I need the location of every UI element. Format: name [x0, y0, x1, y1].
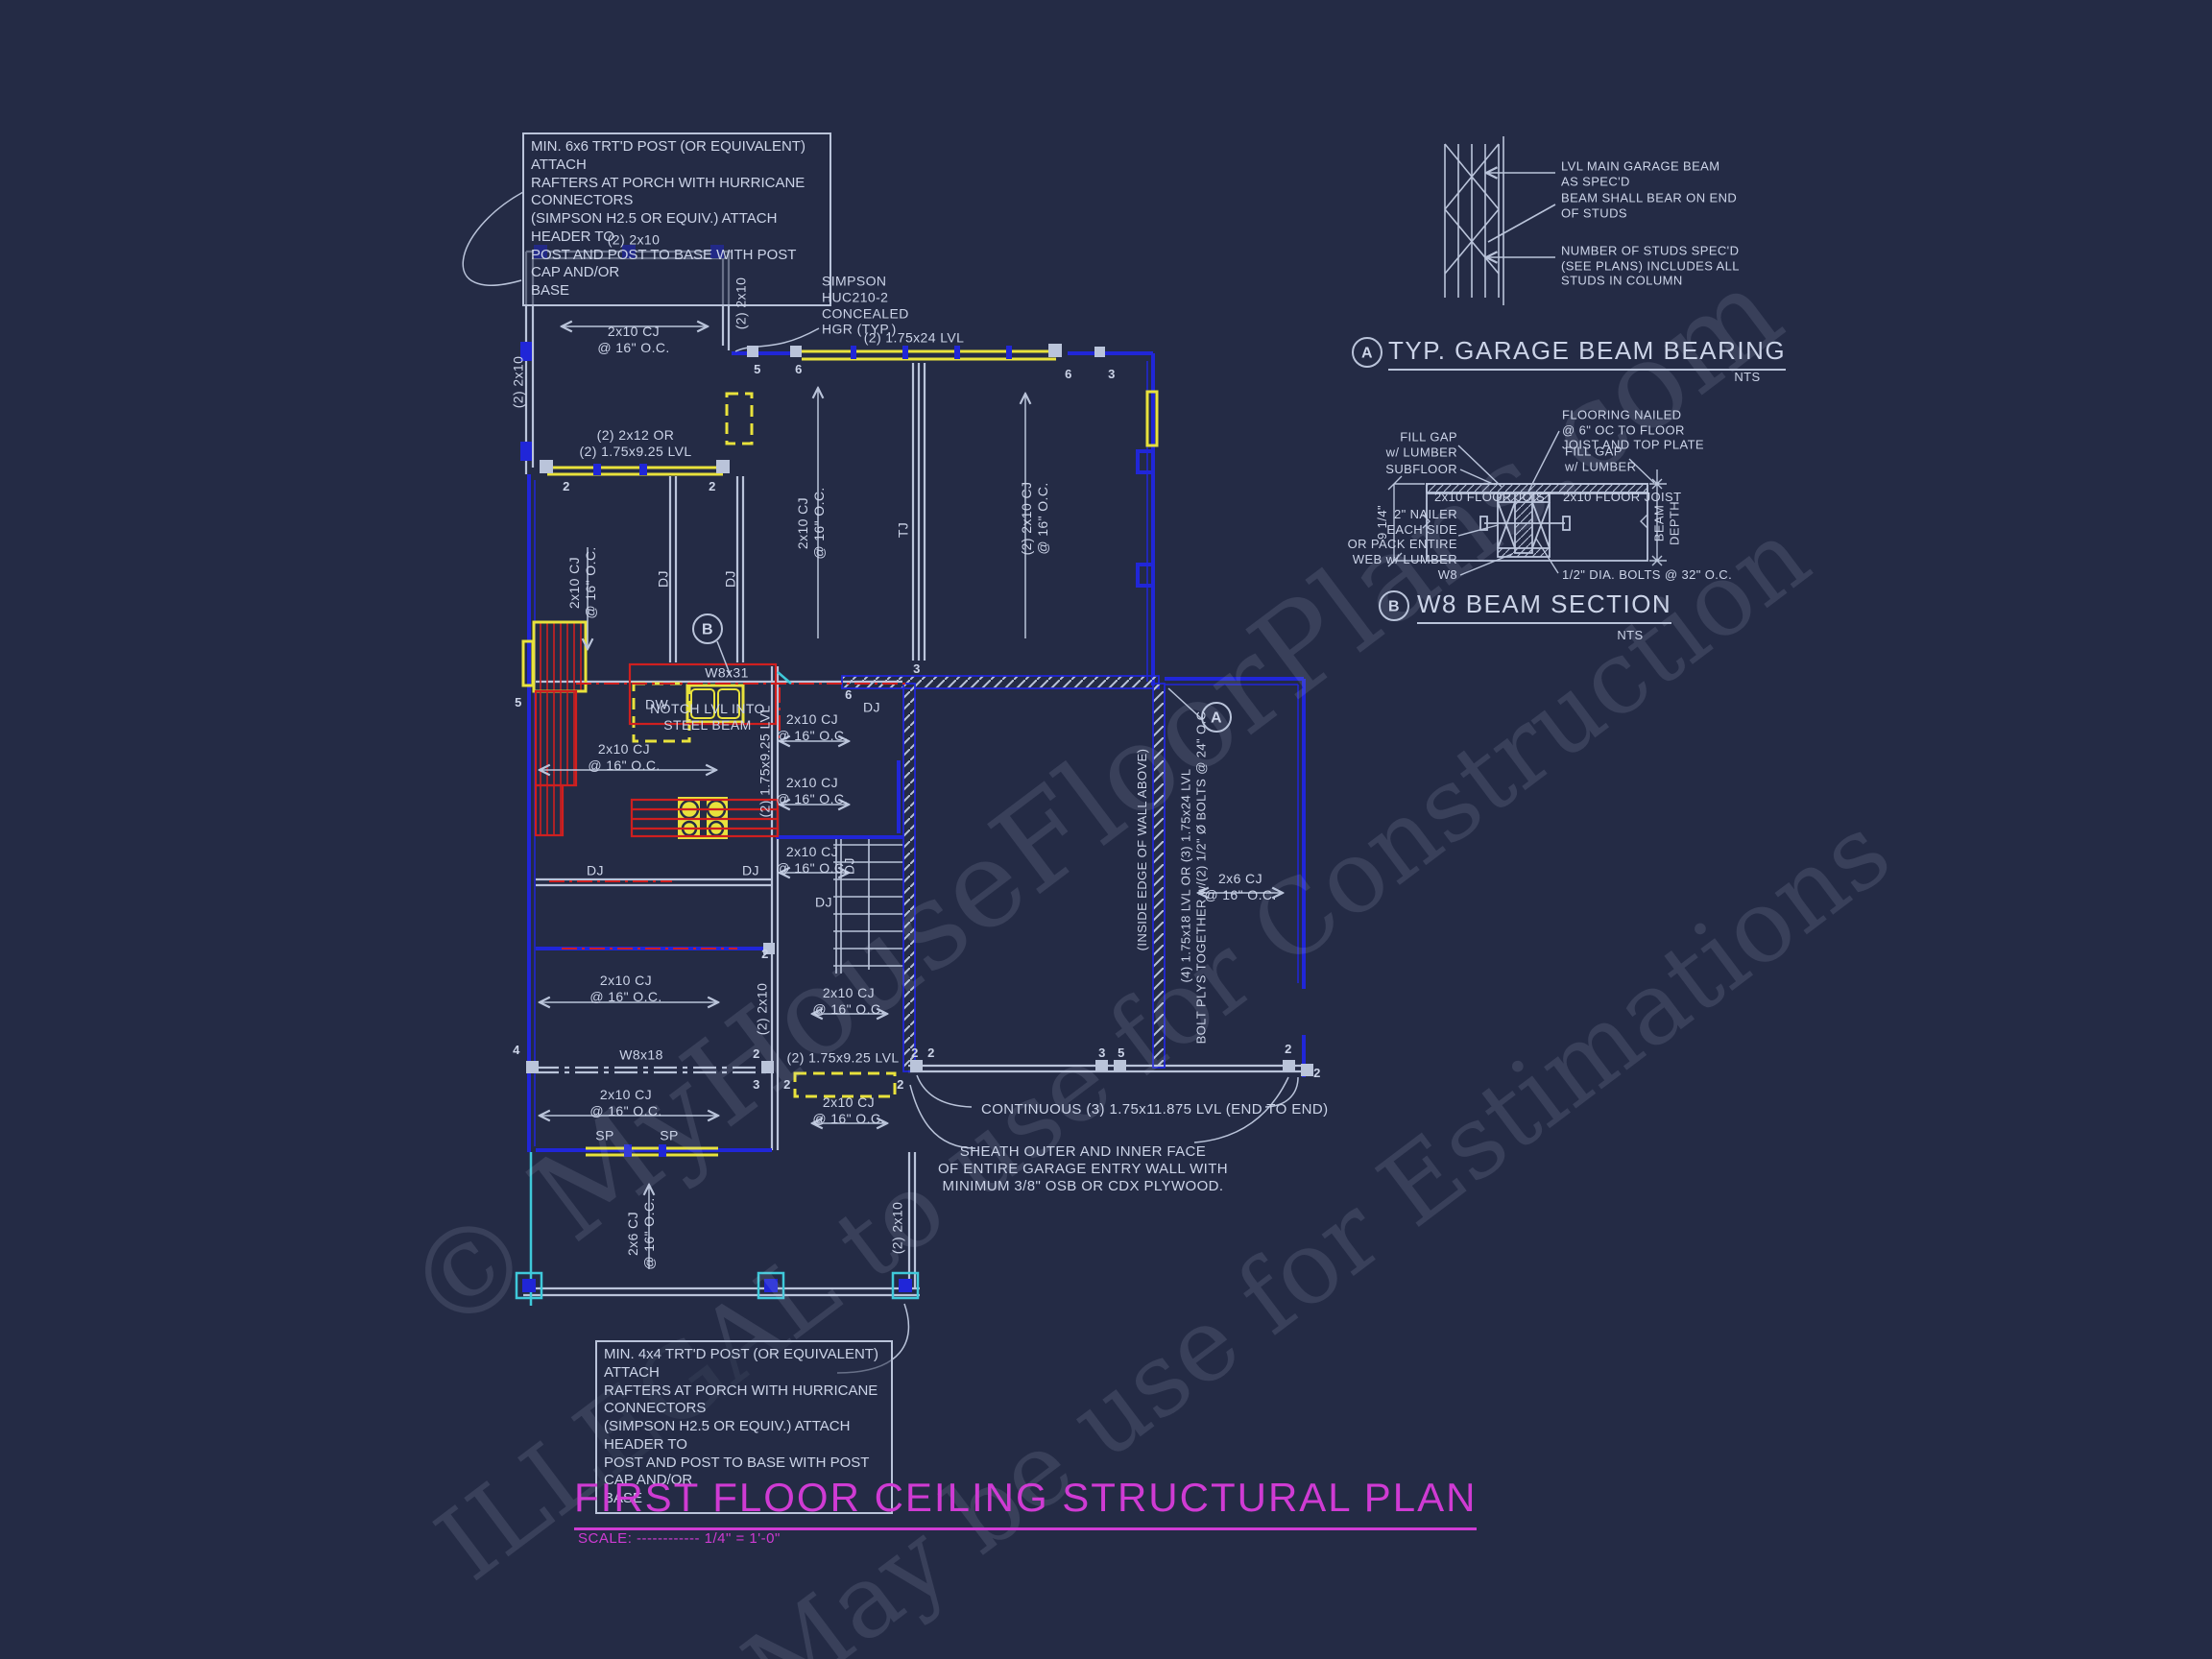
- label-ceiling-joist: 2x10 CJ @ 16" O.C.: [589, 1087, 661, 1119]
- stud-marker: 3: [1108, 367, 1116, 382]
- label-porch-beam: (2) 2x12 OR (2) 1.75x9.25 LVL: [579, 427, 691, 460]
- callout-a: A: [1211, 709, 1222, 727]
- label-ceiling-joist: 2x10 CJ @ 16" O.C.: [812, 1094, 884, 1127]
- stud-marker: 6: [1065, 367, 1072, 382]
- label-ceiling-joist: 2x10 CJ @ 16" O.C.: [597, 324, 669, 356]
- stud-marker: 3: [913, 661, 921, 677]
- detail-b-title: W8 BEAM SECTION: [1417, 589, 1671, 624]
- detail-garage-beam-bearing: [1445, 136, 1555, 305]
- callout-b: B: [702, 620, 713, 638]
- stud-marker: 2: [783, 1077, 791, 1093]
- label-beam: (2) 2x10: [755, 983, 771, 1036]
- detail-b-callout: B: [1388, 597, 1400, 615]
- stud-marker: 6: [795, 362, 803, 377]
- detail-b-label: FILL GAP w/ LUMBER: [1386, 429, 1457, 459]
- detail-a-callout: A: [1361, 344, 1373, 362]
- label-double-joist: DJ: [723, 570, 739, 588]
- detail-b-scale: NTS: [1617, 628, 1643, 643]
- label-beam: (2) 2x10: [890, 1202, 906, 1255]
- label-sp: SP: [595, 1128, 613, 1144]
- detail-a-note: LVL MAIN GARAGE BEAM AS SPEC'D: [1561, 158, 1720, 188]
- stud-marker: 3: [1098, 1046, 1106, 1061]
- label-notch-note: NOTCH LVL INTO STEEL BEAM: [650, 701, 765, 733]
- label-inside-edge: (INSIDE EDGE OF WALL ABOVE): [1135, 749, 1150, 951]
- stud-marker: 2: [761, 947, 769, 962]
- note-porch-post-6x6: MIN. 6x6 TRT'D POST (OR EQUIVALENT) ATTA…: [522, 132, 831, 306]
- sheet-scale: SCALE: ------------ 1/4" = 1'-0": [578, 1530, 781, 1547]
- label-ceiling-joist: 2x10 CJ @ 16" O.C.: [776, 844, 848, 877]
- detail-a-scale: NTS: [1734, 370, 1760, 385]
- sheet-title: FIRST FLOOR CEILING STRUCTURAL PLAN: [574, 1475, 1477, 1530]
- label-double-joist: DJ: [656, 570, 672, 588]
- note-sheathing: SHEATH OUTER AND INNER FACE OF ENTIRE GA…: [938, 1143, 1228, 1195]
- label-double-joist: DJ: [863, 700, 880, 716]
- label-sp: SP: [660, 1128, 678, 1144]
- stud-marker: 5: [754, 362, 761, 377]
- detail-b-label: 2x10 FLOOR JOIST: [1434, 490, 1552, 505]
- label-double-joist: DJ: [842, 857, 858, 875]
- note-continuous-lvl: CONTINUOUS (3) 1.75x11.875 LVL (END TO E…: [981, 1101, 1328, 1118]
- stud-marker: 2: [927, 1046, 935, 1061]
- label-tj: TJ: [896, 522, 912, 538]
- label-garage-lvl: (2) 1.75x24 LVL: [864, 330, 965, 347]
- stud-marker: 2: [897, 1077, 904, 1093]
- label-beam: (2) 2x10: [511, 356, 527, 409]
- detail-a-title: TYP. GARAGE BEAM BEARING: [1388, 336, 1786, 371]
- label-ceiling-joist: 2x10 CJ @ 16" O.C.: [795, 487, 828, 559]
- label-simpson-hanger: SIMPSON HUC210-2 CONCEALED HGR (TYP.): [822, 273, 909, 337]
- detail-a-note: BEAM SHALL BEAR ON END OF STUDS: [1561, 190, 1737, 220]
- stud-marker: 2: [709, 479, 716, 494]
- label-double-joist: DJ: [587, 863, 604, 879]
- detail-a-note: NUMBER OF STUDS SPEC'D (SEE PLANS) INCLU…: [1561, 244, 1740, 289]
- stud-marker: 5: [515, 695, 522, 710]
- detail-b-label: 2" NAILER EACH SIDE OR PACK ENTIRE WEB w…: [1348, 507, 1457, 566]
- label-lvl: (2) 1.75x9.25 LVL: [757, 705, 774, 817]
- label-ceiling-joist: (2) 2x10 CJ @ 16" O.C.: [1019, 482, 1051, 556]
- stud-marker: 2: [753, 1046, 760, 1062]
- label-ceiling-joist: 2x10 CJ @ 16" O.C.: [566, 546, 599, 618]
- stud-marker: 4: [513, 1043, 520, 1058]
- detail-b-label: 9 1/4": [1375, 505, 1390, 540]
- detail-b-label: W8: [1438, 567, 1457, 583]
- label-steel-beam-w8x31: W8x31: [705, 665, 749, 682]
- label-double-joist: DJ: [742, 863, 759, 879]
- label-ceiling-joist: 2x10 CJ @ 16" O.C.: [589, 973, 661, 1005]
- label-beam: (2) 2x10: [733, 277, 750, 330]
- label-beam: (2) 2x10: [608, 232, 661, 249]
- detail-b-label: SUBFLOOR: [1385, 462, 1457, 477]
- detail-b-label: 1/2" DIA. BOLTS @ 32" O.C.: [1562, 567, 1732, 583]
- stud-marker: 2: [1313, 1066, 1321, 1081]
- label-ceiling-joist: 2x10 CJ @ 16" O.C.: [776, 711, 848, 744]
- label-ceiling-joist: 2x6 CJ @ 16" O.C.: [1204, 871, 1276, 903]
- detail-b-label: BEAM DEPTH: [1651, 501, 1681, 545]
- stud-marker: 2: [911, 1046, 919, 1061]
- stud-marker: 6: [845, 687, 853, 703]
- label-ceiling-joist: 2x10 CJ @ 16" O.C.: [776, 775, 848, 807]
- label-double-joist: DJ: [815, 895, 832, 911]
- detail-b-label: FILL GAP w/ LUMBER: [1565, 444, 1636, 473]
- stud-marker: 3: [753, 1077, 760, 1093]
- label-ceiling-joist: 2x6 CJ @ 16" O.C.: [625, 1197, 658, 1269]
- label-steel-beam-w8x18: W8x18: [619, 1047, 663, 1064]
- stud-marker: 5: [1118, 1046, 1125, 1061]
- label-lvl: (2) 1.75x9.25 LVL: [786, 1050, 899, 1067]
- stud-marker: 2: [1285, 1042, 1292, 1057]
- label-ceiling-joist: 2x10 CJ @ 16" O.C.: [588, 741, 660, 774]
- blueprint-canvas: © MyHouseFloorPlans.com ILLEGAL to use f…: [0, 0, 2212, 1659]
- label-ceiling-joist: 2x10 CJ @ 16" O.C.: [812, 985, 884, 1018]
- stud-marker: 2: [563, 479, 570, 494]
